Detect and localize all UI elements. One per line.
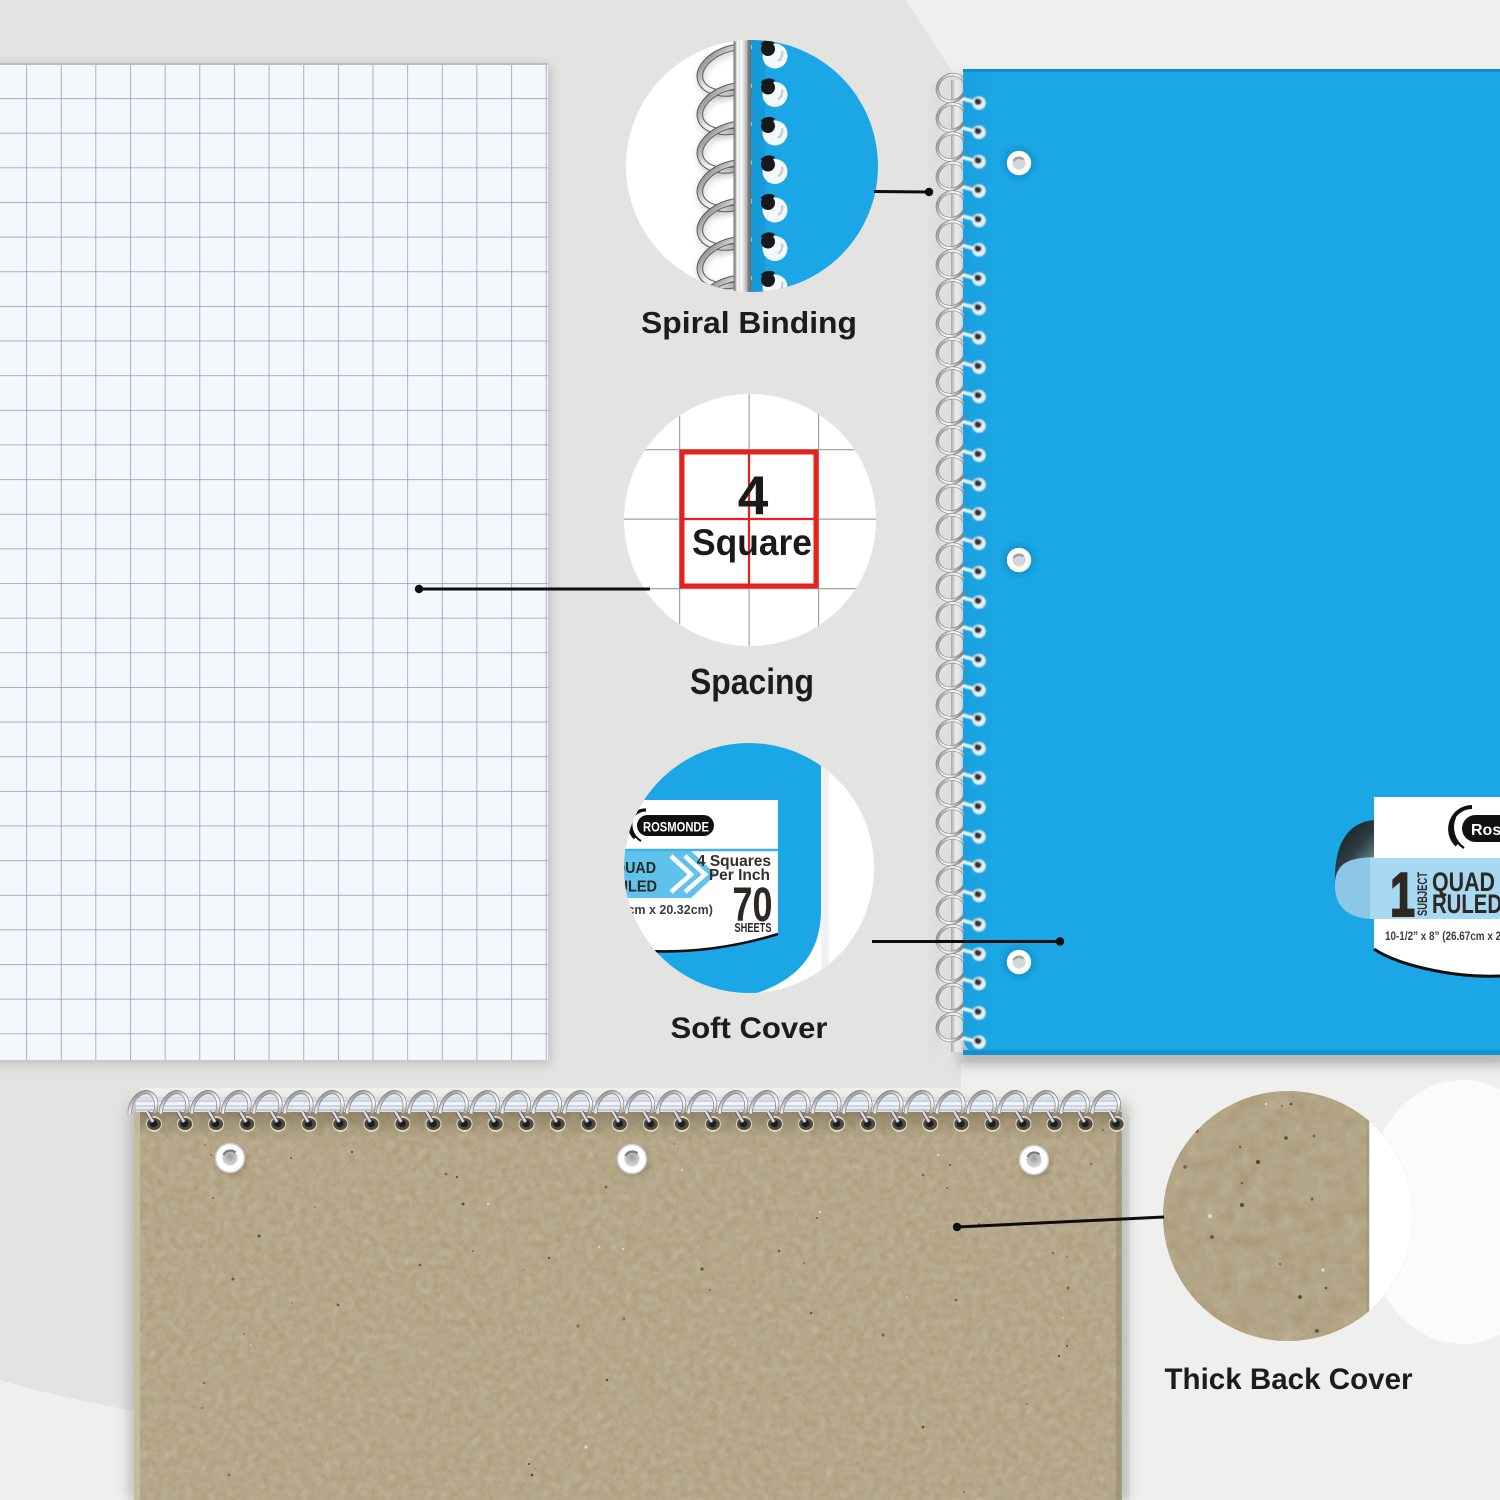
svg-text:4: 4 (738, 464, 769, 526)
svg-text:SUBJECT: SUBJECT (1415, 871, 1430, 916)
svg-text:RULED: RULED (1432, 889, 1500, 919)
svg-text:ROSMONDE: ROSMONDE (643, 820, 709, 835)
svg-text:Spiral Binding: Spiral Binding (641, 305, 857, 340)
svg-text:Thick Back Cover: Thick Back Cover (1165, 1363, 1413, 1396)
svg-text:Soft Cover: Soft Cover (671, 1012, 828, 1045)
svg-text:SHEETS: SHEETS (735, 921, 772, 935)
svg-text:1: 1 (1390, 861, 1415, 930)
svg-text:10-1/2” x 8” (26.67cm x 20.32c: 10-1/2” x 8” (26.67cm x 20.32cm) (1385, 931, 1500, 943)
svg-text:Square: Square (692, 522, 812, 563)
svg-text:Ros: Ros (1471, 822, 1500, 839)
svg-text:Spacing: Spacing (690, 661, 814, 702)
